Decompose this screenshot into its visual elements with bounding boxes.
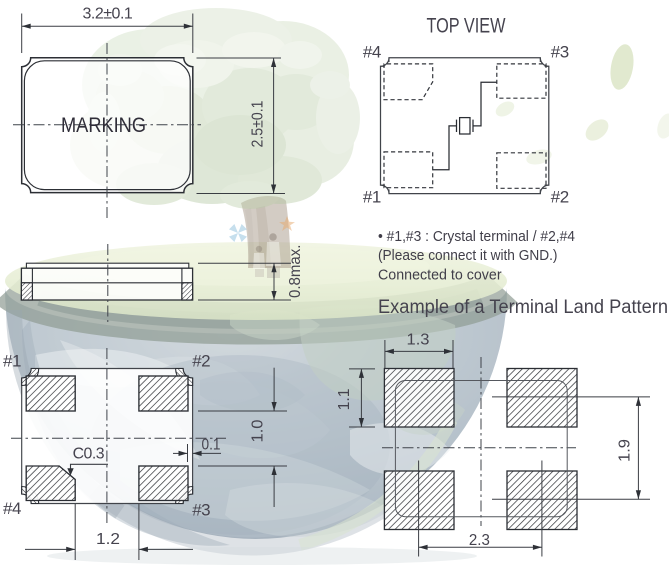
svg-text:C0.3: C0.3	[73, 446, 105, 463]
svg-text:• #1,#3 : Crystal terminal / #: • #1,#3 : Crystal terminal / #2,#4	[378, 228, 575, 245]
svg-text:1.3: 1.3	[407, 332, 430, 349]
svg-text:#4: #4	[363, 43, 381, 62]
svg-text:TOP VIEW: TOP VIEW	[427, 14, 506, 37]
svg-text:0.8max.: 0.8max.	[287, 245, 304, 299]
svg-text:3.2±0.1: 3.2±0.1	[83, 6, 133, 23]
svg-text:#3: #3	[551, 43, 569, 62]
svg-text:1.1: 1.1	[336, 388, 353, 410]
svg-text:Example of a Terminal Land Pat: Example of a Terminal Land Pattern	[378, 297, 668, 318]
svg-text:MARKING: MARKING	[61, 114, 146, 137]
svg-text:#2: #2	[551, 188, 569, 207]
svg-text:(Please connect it with GND.): (Please connect it with GND.)	[378, 247, 558, 264]
svg-text:0.1: 0.1	[202, 436, 221, 453]
svg-text:1.9: 1.9	[616, 439, 633, 462]
svg-text:2.5±0.1: 2.5±0.1	[250, 101, 267, 148]
svg-text:1.2: 1.2	[96, 531, 120, 548]
svg-text:#1: #1	[363, 188, 381, 207]
svg-text:1.0: 1.0	[250, 419, 267, 442]
svg-text:2.3: 2.3	[469, 532, 490, 549]
svg-text:#3: #3	[192, 501, 210, 520]
svg-text:#2: #2	[192, 351, 210, 370]
svg-text:#4: #4	[3, 499, 21, 518]
svg-text:#1: #1	[3, 351, 21, 370]
svg-text:Connected to cover: Connected to cover	[378, 267, 502, 284]
